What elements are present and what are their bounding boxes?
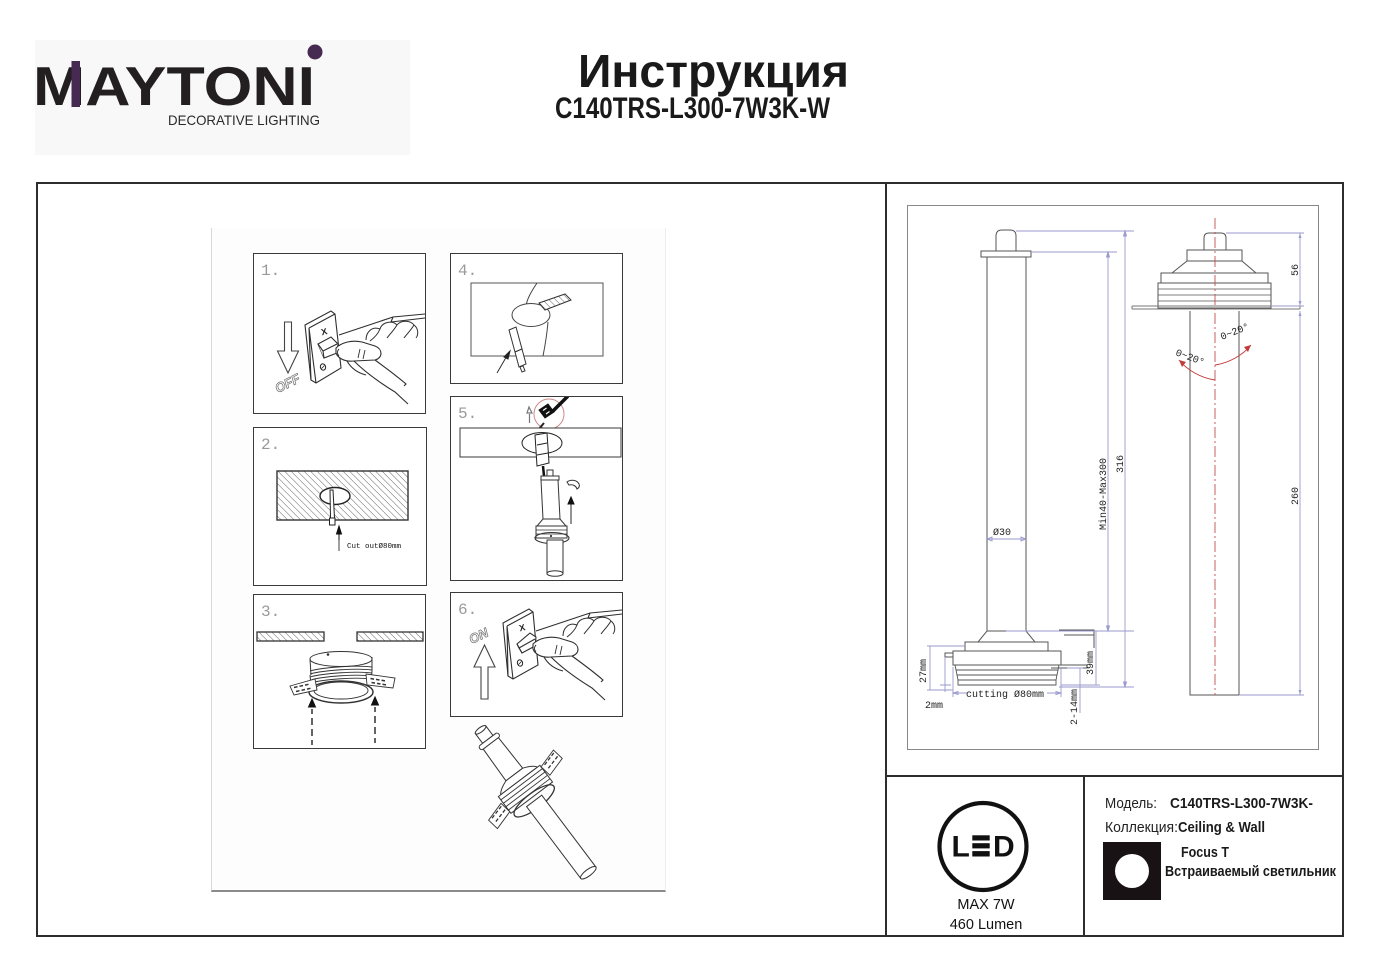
svg-text:2mm: 2mm bbox=[925, 701, 943, 712]
svg-text:27mm: 27mm bbox=[919, 659, 930, 683]
svg-text:4.: 4. bbox=[458, 262, 477, 280]
svg-text:DECORATIVE LIGHTING: DECORATIVE LIGHTING bbox=[168, 112, 320, 128]
svg-text:Встраиваемый светильник: Встраиваемый светильник bbox=[1165, 863, 1336, 880]
svg-text:5.: 5. bbox=[458, 405, 477, 423]
svg-text:3.: 3. bbox=[261, 603, 280, 621]
svg-text:L: L bbox=[952, 831, 970, 864]
svg-text:C140TRS-L300-7W3K-W: C140TRS-L300-7W3K-W bbox=[555, 92, 831, 125]
svg-text:cutting Ø80mm: cutting Ø80mm bbox=[966, 689, 1044, 701]
svg-text:316: 316 bbox=[1116, 455, 1127, 473]
svg-text:D: D bbox=[993, 831, 1015, 864]
svg-text:Модель:: Модель: bbox=[1105, 795, 1157, 812]
svg-text:OFF: OFF bbox=[272, 370, 303, 396]
svg-text:6.: 6. bbox=[458, 601, 477, 619]
svg-text:C140TRS-L300-7W3K-: C140TRS-L300-7W3K- bbox=[1170, 795, 1313, 812]
svg-text:Cut outØ80mm: Cut outØ80mm bbox=[347, 542, 402, 551]
svg-text:Min40-Max300: Min40-Max300 bbox=[1098, 458, 1110, 530]
svg-text:1.: 1. bbox=[261, 262, 280, 280]
svg-text:Ø30: Ø30 bbox=[993, 527, 1011, 539]
svg-text:Коллекция:: Коллекция: bbox=[1105, 819, 1178, 836]
svg-text:2-14mm: 2-14mm bbox=[1070, 689, 1081, 725]
svg-text:2.: 2. bbox=[261, 436, 280, 454]
svg-text:Инструкция: Инструкция bbox=[578, 45, 849, 97]
svg-text:ON: ON bbox=[467, 625, 492, 647]
svg-text:260: 260 bbox=[1291, 487, 1302, 505]
svg-text:56: 56 bbox=[1291, 264, 1302, 276]
svg-text:Ceiling & Wall: Ceiling & Wall bbox=[1178, 819, 1265, 836]
svg-text:Focus T: Focus T bbox=[1181, 844, 1229, 861]
svg-text:39mm: 39mm bbox=[1086, 651, 1097, 675]
